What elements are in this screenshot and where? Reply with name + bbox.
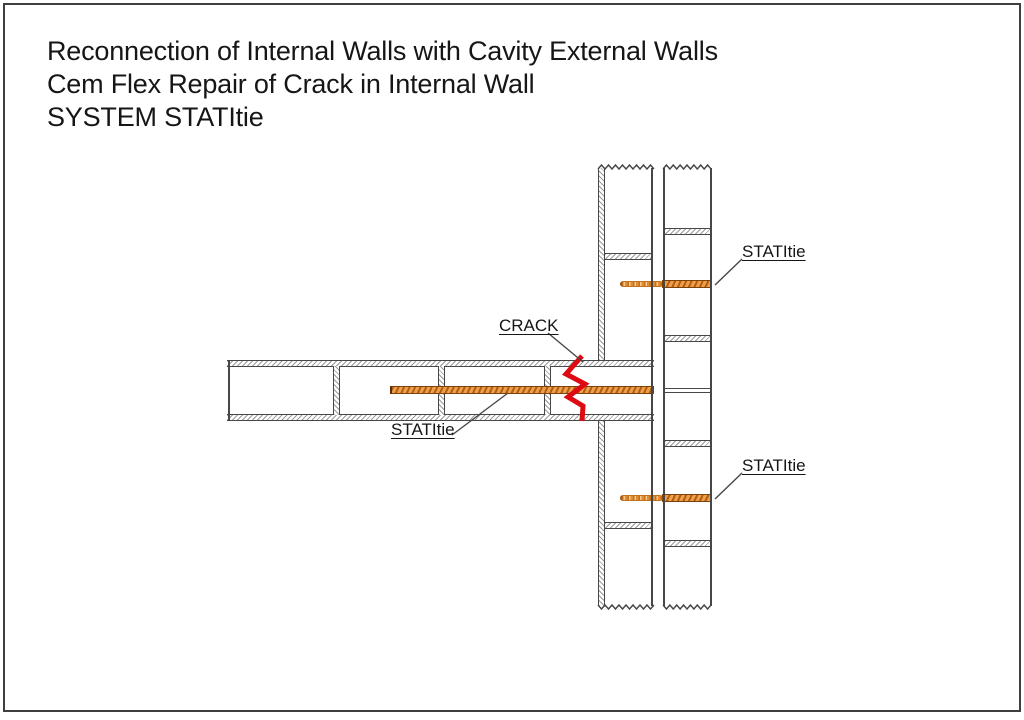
statitie-internal-wall-tie — [390, 386, 654, 394]
inner-leaf-hatch-strip-upper — [598, 168, 605, 360]
outer-leaf-outer-edge — [710, 168, 712, 606]
statitie-lower-leader-line — [715, 473, 742, 499]
mortar-joint — [665, 228, 710, 235]
break-line-icon — [598, 165, 654, 169]
title-line-1: Reconnection of Internal Walls with Cavi… — [47, 35, 718, 68]
statitie-lower-label: STATItie — [742, 456, 806, 476]
internal-wall-end-cap — [228, 360, 230, 421]
statitie-upper-label: STATItie — [742, 242, 806, 262]
inner-leaf-hatch-strip-lower — [598, 421, 605, 606]
mortar-joint — [333, 366, 340, 415]
statitie-upper-leader-line — [715, 259, 742, 285]
drawing-sheet: Reconnection of Internal Walls with Cavi… — [3, 3, 1021, 712]
outer-leaf-cavity-edge — [663, 168, 665, 606]
crack-leader-line — [548, 333, 583, 362]
outer-leaf-plain-joint — [665, 388, 710, 393]
title-line-3: SYSTEM STATItie — [47, 101, 718, 134]
statitie-lower-tie-bar — [662, 494, 712, 502]
statitie-internal-label: STATItie — [391, 420, 455, 440]
crack-label: CRACK — [499, 316, 559, 336]
statitie-lower-tie-coil — [620, 495, 663, 501]
mortar-joint — [665, 540, 710, 547]
inner-leaf-cavity-edge — [651, 168, 653, 606]
break-line-icon — [663, 165, 711, 169]
statitie-upper-tie-bar — [662, 280, 712, 288]
break-line-icon — [598, 605, 654, 609]
statitie-upper-tie-coil — [620, 281, 663, 287]
mortar-joint — [605, 522, 651, 529]
break-line-icon — [663, 605, 711, 609]
drawing-title: Reconnection of Internal Walls with Cavi… — [47, 35, 718, 134]
mortar-joint — [665, 335, 710, 342]
title-line-2: Cem Flex Repair of Crack in Internal Wal… — [47, 68, 718, 101]
mortar-joint — [605, 253, 651, 260]
mortar-joint — [665, 440, 710, 447]
